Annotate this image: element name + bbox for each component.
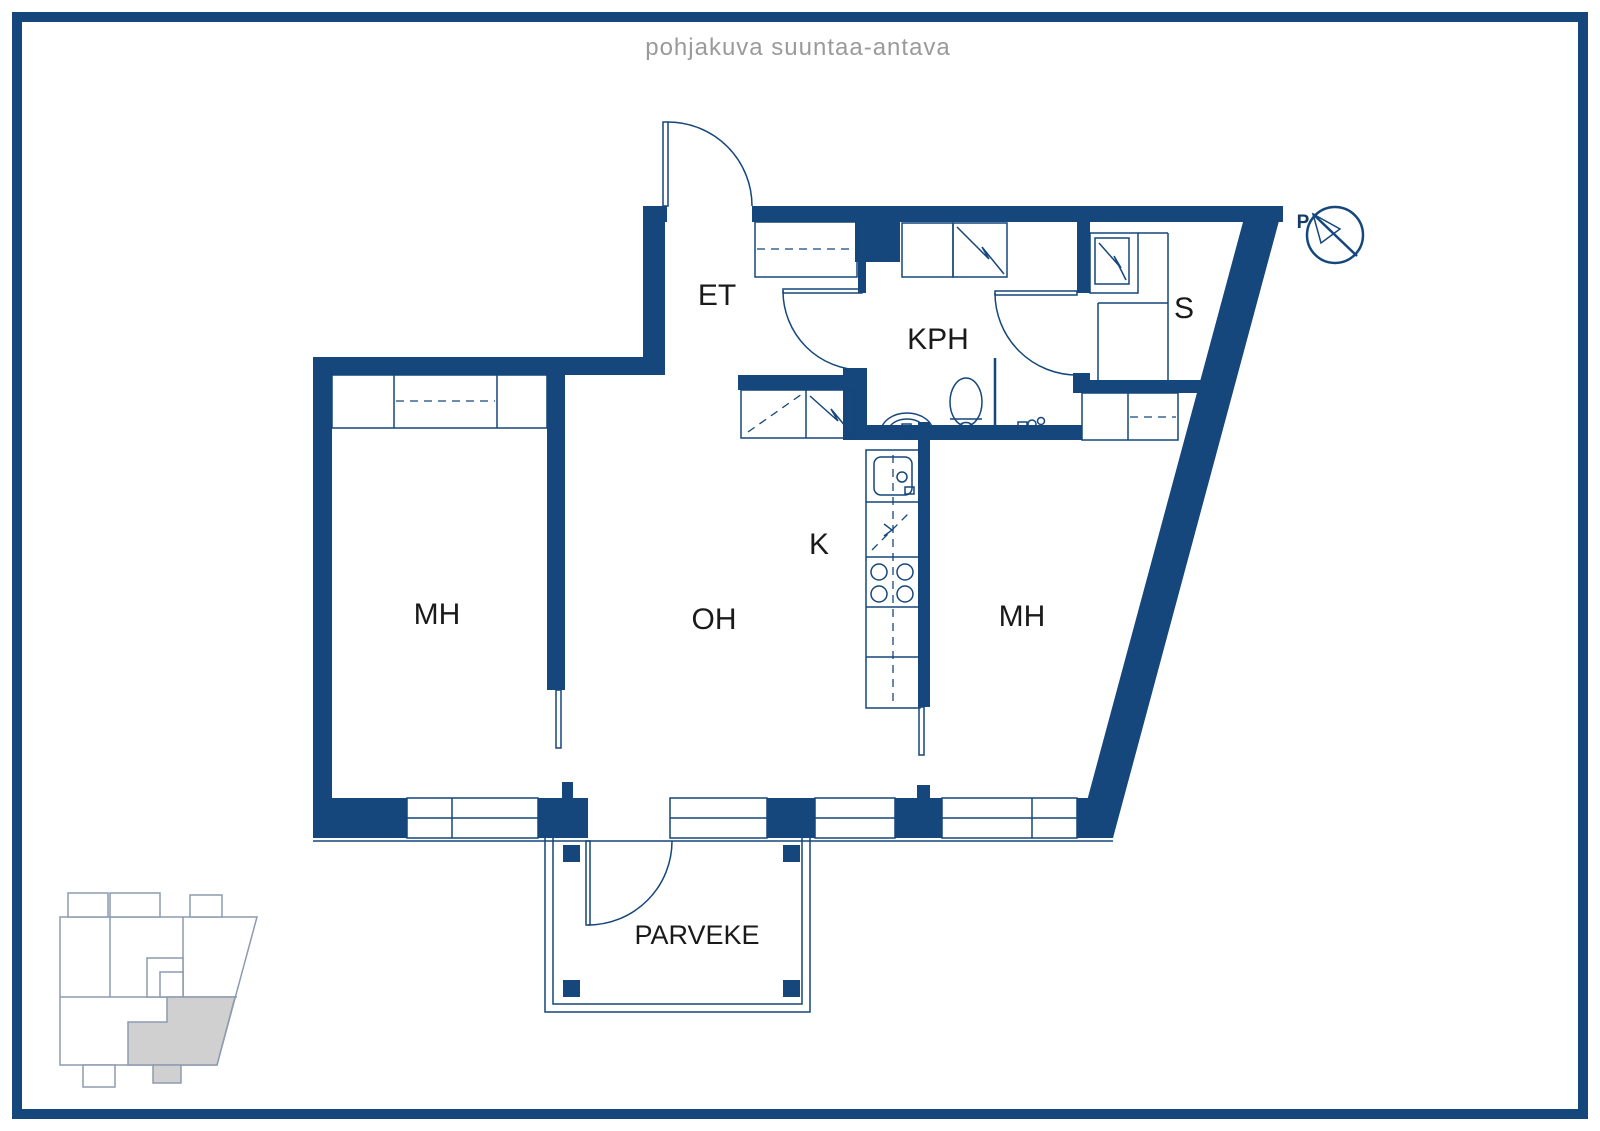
wall-shaft	[855, 222, 900, 262]
dashed-symbols	[396, 249, 1176, 703]
reservation-arrow	[884, 524, 892, 536]
stove-burner	[871, 564, 887, 580]
compass-needle-icon	[1313, 214, 1357, 256]
wall-openings	[407, 204, 1077, 840]
floor-plan-canvas: pohjakuva suuntaa-antava	[0, 0, 1600, 1131]
linework	[313, 122, 1178, 1012]
wall-et-left	[643, 206, 665, 375]
door-swing-arc	[995, 293, 1077, 375]
door-leaf	[663, 122, 668, 206]
compass-north-label: P	[1297, 212, 1310, 233]
wall-wing-top	[313, 357, 665, 375]
closet-reservation-diagonal	[748, 394, 802, 432]
bathroom-fixtures	[881, 358, 1045, 436]
balcony-post-bottom-right	[783, 980, 800, 997]
room-label-parveke: PARVEKE	[634, 920, 759, 950]
building-section	[68, 893, 108, 917]
page-border-frame	[17, 17, 1583, 1114]
wall-mh-left-divider	[547, 375, 565, 690]
building-section	[83, 1065, 115, 1087]
building-interior-room	[160, 972, 183, 997]
wall-mh-left-stub	[562, 782, 573, 798]
plan-title: pohjakuva suuntaa-antava	[645, 34, 951, 61]
building-section	[110, 893, 160, 917]
mh-left-door-leaf	[556, 690, 561, 748]
stove-burner	[871, 586, 887, 602]
door-swing-arc	[668, 122, 752, 206]
apartment-balcony-highlight	[153, 1065, 181, 1083]
door-leaf	[586, 841, 590, 925]
appliance-zigzag-icon	[1099, 243, 1126, 280]
floor-plan-page: pohjakuva suuntaa-antava	[0, 0, 1600, 1131]
stove-burner	[897, 586, 913, 602]
wall-oh-mh-right-stub	[917, 785, 930, 798]
entrance-door	[663, 122, 752, 206]
wall-kph-sauna-divider	[1077, 222, 1090, 293]
balcony-post-top-right	[783, 845, 800, 862]
balcony-door	[586, 841, 672, 925]
room-label-kph: KPH	[907, 323, 969, 356]
sauna-fixtures	[1090, 233, 1168, 380]
wall-left	[313, 357, 332, 838]
compass: P	[1297, 207, 1363, 263]
door-swing-arc	[588, 841, 672, 925]
appliance-zigzag-icon	[957, 227, 1004, 274]
door-leaf	[783, 289, 862, 293]
room-label-oh: OH	[692, 603, 737, 636]
balcony-post-bottom-left	[563, 980, 580, 997]
kph-appliances	[902, 223, 1007, 277]
room-label-sauna: S	[1174, 292, 1194, 325]
balcony-post-top-left	[563, 845, 580, 862]
tap-icon	[1038, 418, 1045, 425]
mh-right-door-leaf	[919, 707, 924, 755]
sauna-bench-lower	[1098, 303, 1168, 380]
wall-kph-sauna-post	[1073, 373, 1090, 393]
room-label-et: ET	[698, 279, 736, 312]
building-locator-map	[60, 893, 257, 1087]
washer-space	[902, 223, 953, 277]
room-label-mh-right: MH	[999, 600, 1046, 633]
room-label-mh-left: MH	[414, 598, 461, 631]
sink-drain	[897, 472, 907, 482]
kph-sauna-door	[995, 291, 1077, 375]
door-leaf	[995, 291, 1077, 295]
door-swing-arc	[783, 291, 862, 370]
et-kph-door	[783, 289, 862, 370]
wall-sauna-bottom	[1090, 380, 1203, 393]
room-label-kitchen: K	[809, 528, 829, 561]
entrance-door-opening	[667, 204, 752, 224]
building-section	[190, 895, 222, 917]
stove-burner	[897, 564, 913, 580]
